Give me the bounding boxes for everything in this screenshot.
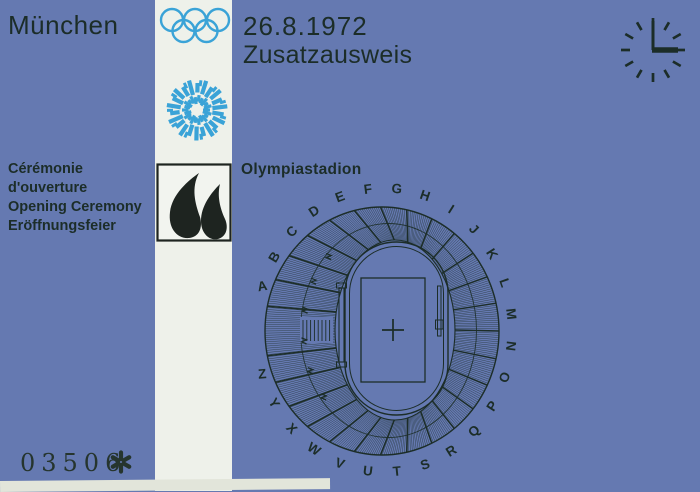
stadium-section-label-R: R bbox=[443, 442, 459, 460]
stadium-section-label-J: J bbox=[466, 221, 482, 237]
stadium-section-label-S: S bbox=[418, 456, 431, 473]
stadium-section-label-E: E bbox=[333, 188, 347, 205]
olympic-rings-icon bbox=[161, 9, 229, 42]
stadium-section-label-Y: Y bbox=[265, 395, 283, 410]
ticket: { "ticket": { "city": "München", "date":… bbox=[0, 0, 700, 491]
stadium-section-label-U: U bbox=[362, 463, 374, 479]
stadium-section-label-D: D bbox=[306, 202, 323, 220]
munich-1972-spiral-emblem-icon bbox=[167, 80, 227, 140]
stadium-section-label-L: L bbox=[496, 276, 513, 289]
ticket-graphics: ABCDEFGHIJKLMNOPQRSTUVWXYZ bbox=[0, 0, 700, 491]
stadium-section-label-V: V bbox=[333, 455, 347, 472]
stadium-map: ABCDEFGHIJKLMNOPQRSTUVWXYZ bbox=[256, 181, 519, 479]
asterisk-icon bbox=[113, 453, 129, 472]
stadium-section-label-Z: Z bbox=[258, 366, 268, 382]
stadium-section-label-C: C bbox=[283, 223, 301, 241]
stadium-section-label-K: K bbox=[483, 246, 501, 262]
clock-icon bbox=[621, 18, 685, 82]
stadium-section-label-P: P bbox=[483, 398, 500, 414]
stadium-section-label-N: N bbox=[503, 340, 519, 351]
stadium-section-label-A: A bbox=[256, 278, 268, 295]
stadium-section-label-O: O bbox=[496, 370, 514, 385]
stadium-section-label-M: M bbox=[503, 308, 519, 321]
stadium-section-label-Q: Q bbox=[465, 422, 483, 440]
stadium-section-label-G: G bbox=[391, 181, 403, 197]
stadium-section-label-T: T bbox=[392, 463, 402, 479]
stadium-section-label-H: H bbox=[418, 187, 432, 204]
stadium-section-label-F: F bbox=[363, 181, 373, 197]
stadium-section-label-X: X bbox=[283, 420, 300, 437]
stadium-section-label-I: I bbox=[446, 202, 457, 217]
stadium-section-label-W: W bbox=[305, 439, 324, 459]
stadium-section-label-B: B bbox=[265, 249, 283, 265]
olympic-flame-pictogram-icon bbox=[158, 165, 231, 241]
